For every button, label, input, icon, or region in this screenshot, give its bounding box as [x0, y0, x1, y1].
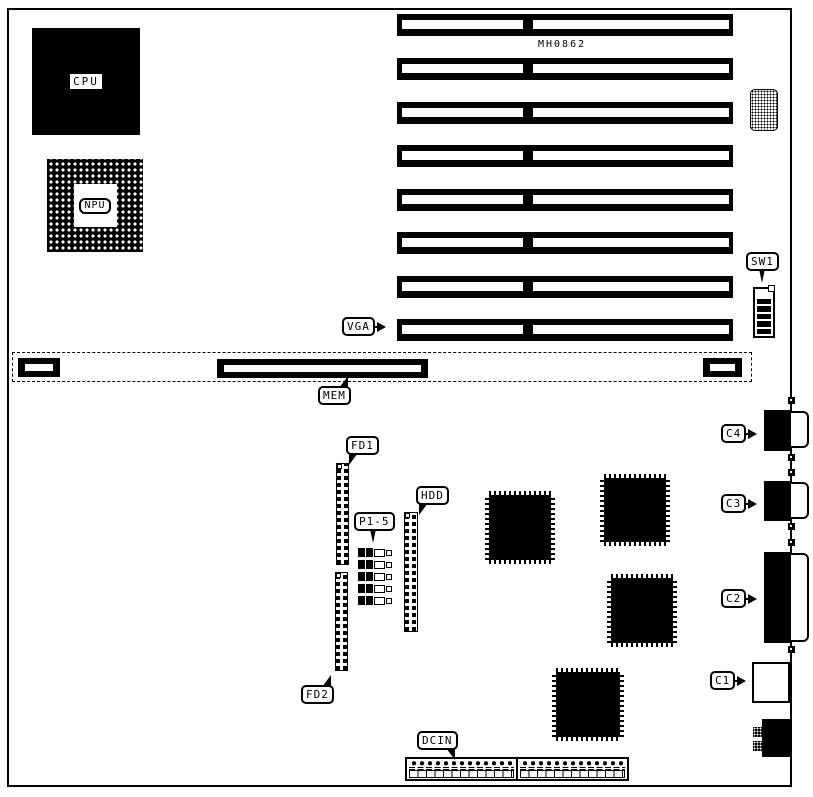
jumper-cell [374, 573, 386, 581]
c1-callout: C1 [710, 671, 735, 690]
dip-position [757, 299, 771, 305]
jumper-p4 [358, 584, 392, 593]
dcin-pin-row [409, 760, 514, 767]
dip-position [757, 314, 771, 320]
slot-key-right [533, 325, 729, 334]
jumper-cell [386, 562, 392, 568]
edge-screw-post [788, 539, 795, 546]
qfp-chip-body [556, 672, 620, 737]
dcin-connector [405, 757, 629, 781]
qfp-chip-body [604, 478, 666, 542]
keyboard-connector [750, 89, 778, 131]
expansion-slot-6 [397, 232, 733, 254]
expansion-slot-5 [397, 189, 733, 211]
jumper-cell [358, 584, 365, 593]
jumper-cell [366, 548, 373, 557]
cpu-chip: CPU [32, 28, 140, 135]
c3-callout: C3 [721, 494, 746, 513]
qfp-chip-body [611, 578, 673, 643]
fd1-callout: FD1 [346, 436, 379, 455]
c4-callout: C4 [721, 424, 746, 443]
expansion-slot-4 [397, 145, 733, 167]
npu-chip: NPU [47, 159, 143, 252]
memory-module-long [217, 359, 428, 378]
expansion-slot-8-vga [397, 319, 733, 341]
dip-position [757, 291, 771, 297]
edge-screw-post [788, 523, 795, 530]
hdd-callout: HDD [416, 486, 449, 505]
qfp-chip-3 [607, 574, 677, 647]
slot-key-left [402, 151, 523, 160]
jumper-cell [386, 586, 392, 592]
slot-key-left [402, 20, 523, 29]
sw1-dip-switch [753, 287, 775, 338]
memory-module-small-right [703, 358, 742, 377]
qfp-chip-1 [485, 491, 555, 564]
slot-key-right [533, 64, 729, 73]
qfp-chip-4 [552, 668, 624, 741]
fd2-pin-header [335, 572, 348, 671]
sw1-callout: SW1 [746, 252, 779, 271]
expansion-slot-7 [397, 276, 733, 298]
jumper-cell [374, 597, 386, 605]
slot-key-left [402, 195, 523, 204]
jumper-p1 [358, 548, 392, 557]
jumper-cell [366, 596, 373, 605]
dcin-half-right [516, 759, 627, 779]
jumper-cell [386, 550, 392, 556]
jack-pin-block [753, 727, 762, 737]
jumper-cell [366, 584, 373, 593]
p1-5-callout: P1-5 [354, 512, 395, 531]
board-model-text: MH0862 [538, 39, 586, 50]
mem-callout: MEM [318, 386, 351, 405]
slot-key-right [533, 195, 729, 204]
c2-connector [764, 552, 791, 643]
npu-label: NPU [79, 198, 110, 214]
hdd-pin-header [404, 512, 418, 632]
jumper-cell [358, 596, 365, 605]
jumper-p5 [358, 596, 392, 605]
slot-key-right [533, 151, 729, 160]
jumper-cell [386, 574, 392, 580]
dip-position [757, 329, 771, 335]
jumper-p3 [358, 572, 392, 581]
jumper-cell [358, 560, 365, 569]
slot-key-left [402, 325, 523, 334]
fd1-pin-header [336, 463, 349, 565]
slot-key-right [533, 20, 729, 29]
jumper-cell [386, 598, 392, 604]
edge-screw-post [788, 469, 795, 476]
c2-callout: C2 [721, 589, 746, 608]
c3-port-shell [789, 482, 809, 519]
jack-connector [762, 719, 791, 757]
jumper-cell [374, 561, 386, 569]
jumper-cell [374, 549, 386, 557]
edge-screw-post [788, 454, 795, 461]
dip-position [757, 321, 771, 327]
c4-connector [764, 410, 791, 451]
c3-connector [764, 481, 791, 521]
motherboard-diagram: CPU NPU MH0862 [0, 0, 813, 797]
slot-key-right [533, 238, 729, 247]
dcin-half-left [407, 759, 516, 779]
dcin-callout: DCIN [417, 731, 458, 750]
edge-screw-post [788, 646, 795, 653]
jack-pin-block [753, 741, 762, 751]
c4-port-shell [789, 411, 809, 448]
slot-key-left [402, 64, 523, 73]
dcin-terminal-row [520, 770, 625, 778]
expansion-slot-3 [397, 102, 733, 124]
jumper-cell [374, 585, 386, 593]
memory-module-small-left [18, 358, 60, 377]
jumper-cell [358, 572, 365, 581]
jumper-cell [366, 572, 373, 581]
slot-key-left [402, 238, 523, 247]
qfp-chip-2 [600, 474, 670, 546]
c1-connector [752, 662, 790, 703]
slot-key-left [402, 108, 523, 117]
slot-key-right [533, 108, 729, 117]
jumper-cell [366, 560, 373, 569]
dip-position [757, 306, 771, 312]
cpu-label: CPU [70, 74, 102, 89]
jumper-p2 [358, 560, 392, 569]
edge-screw-post [788, 397, 795, 404]
dcin-terminal-row [409, 770, 514, 778]
dcin-pin-row [520, 760, 625, 767]
expansion-slot-2 [397, 58, 733, 80]
vga-callout: VGA [342, 317, 375, 336]
expansion-slot-1 [397, 14, 733, 36]
qfp-chip-body [489, 495, 551, 560]
jumper-cell [358, 548, 365, 557]
slot-key-left [402, 282, 523, 291]
c2-port-shell [789, 553, 809, 642]
npu-chip-center: NPU [74, 184, 117, 227]
fd2-callout: FD2 [301, 685, 334, 704]
slot-key-right [533, 282, 729, 291]
